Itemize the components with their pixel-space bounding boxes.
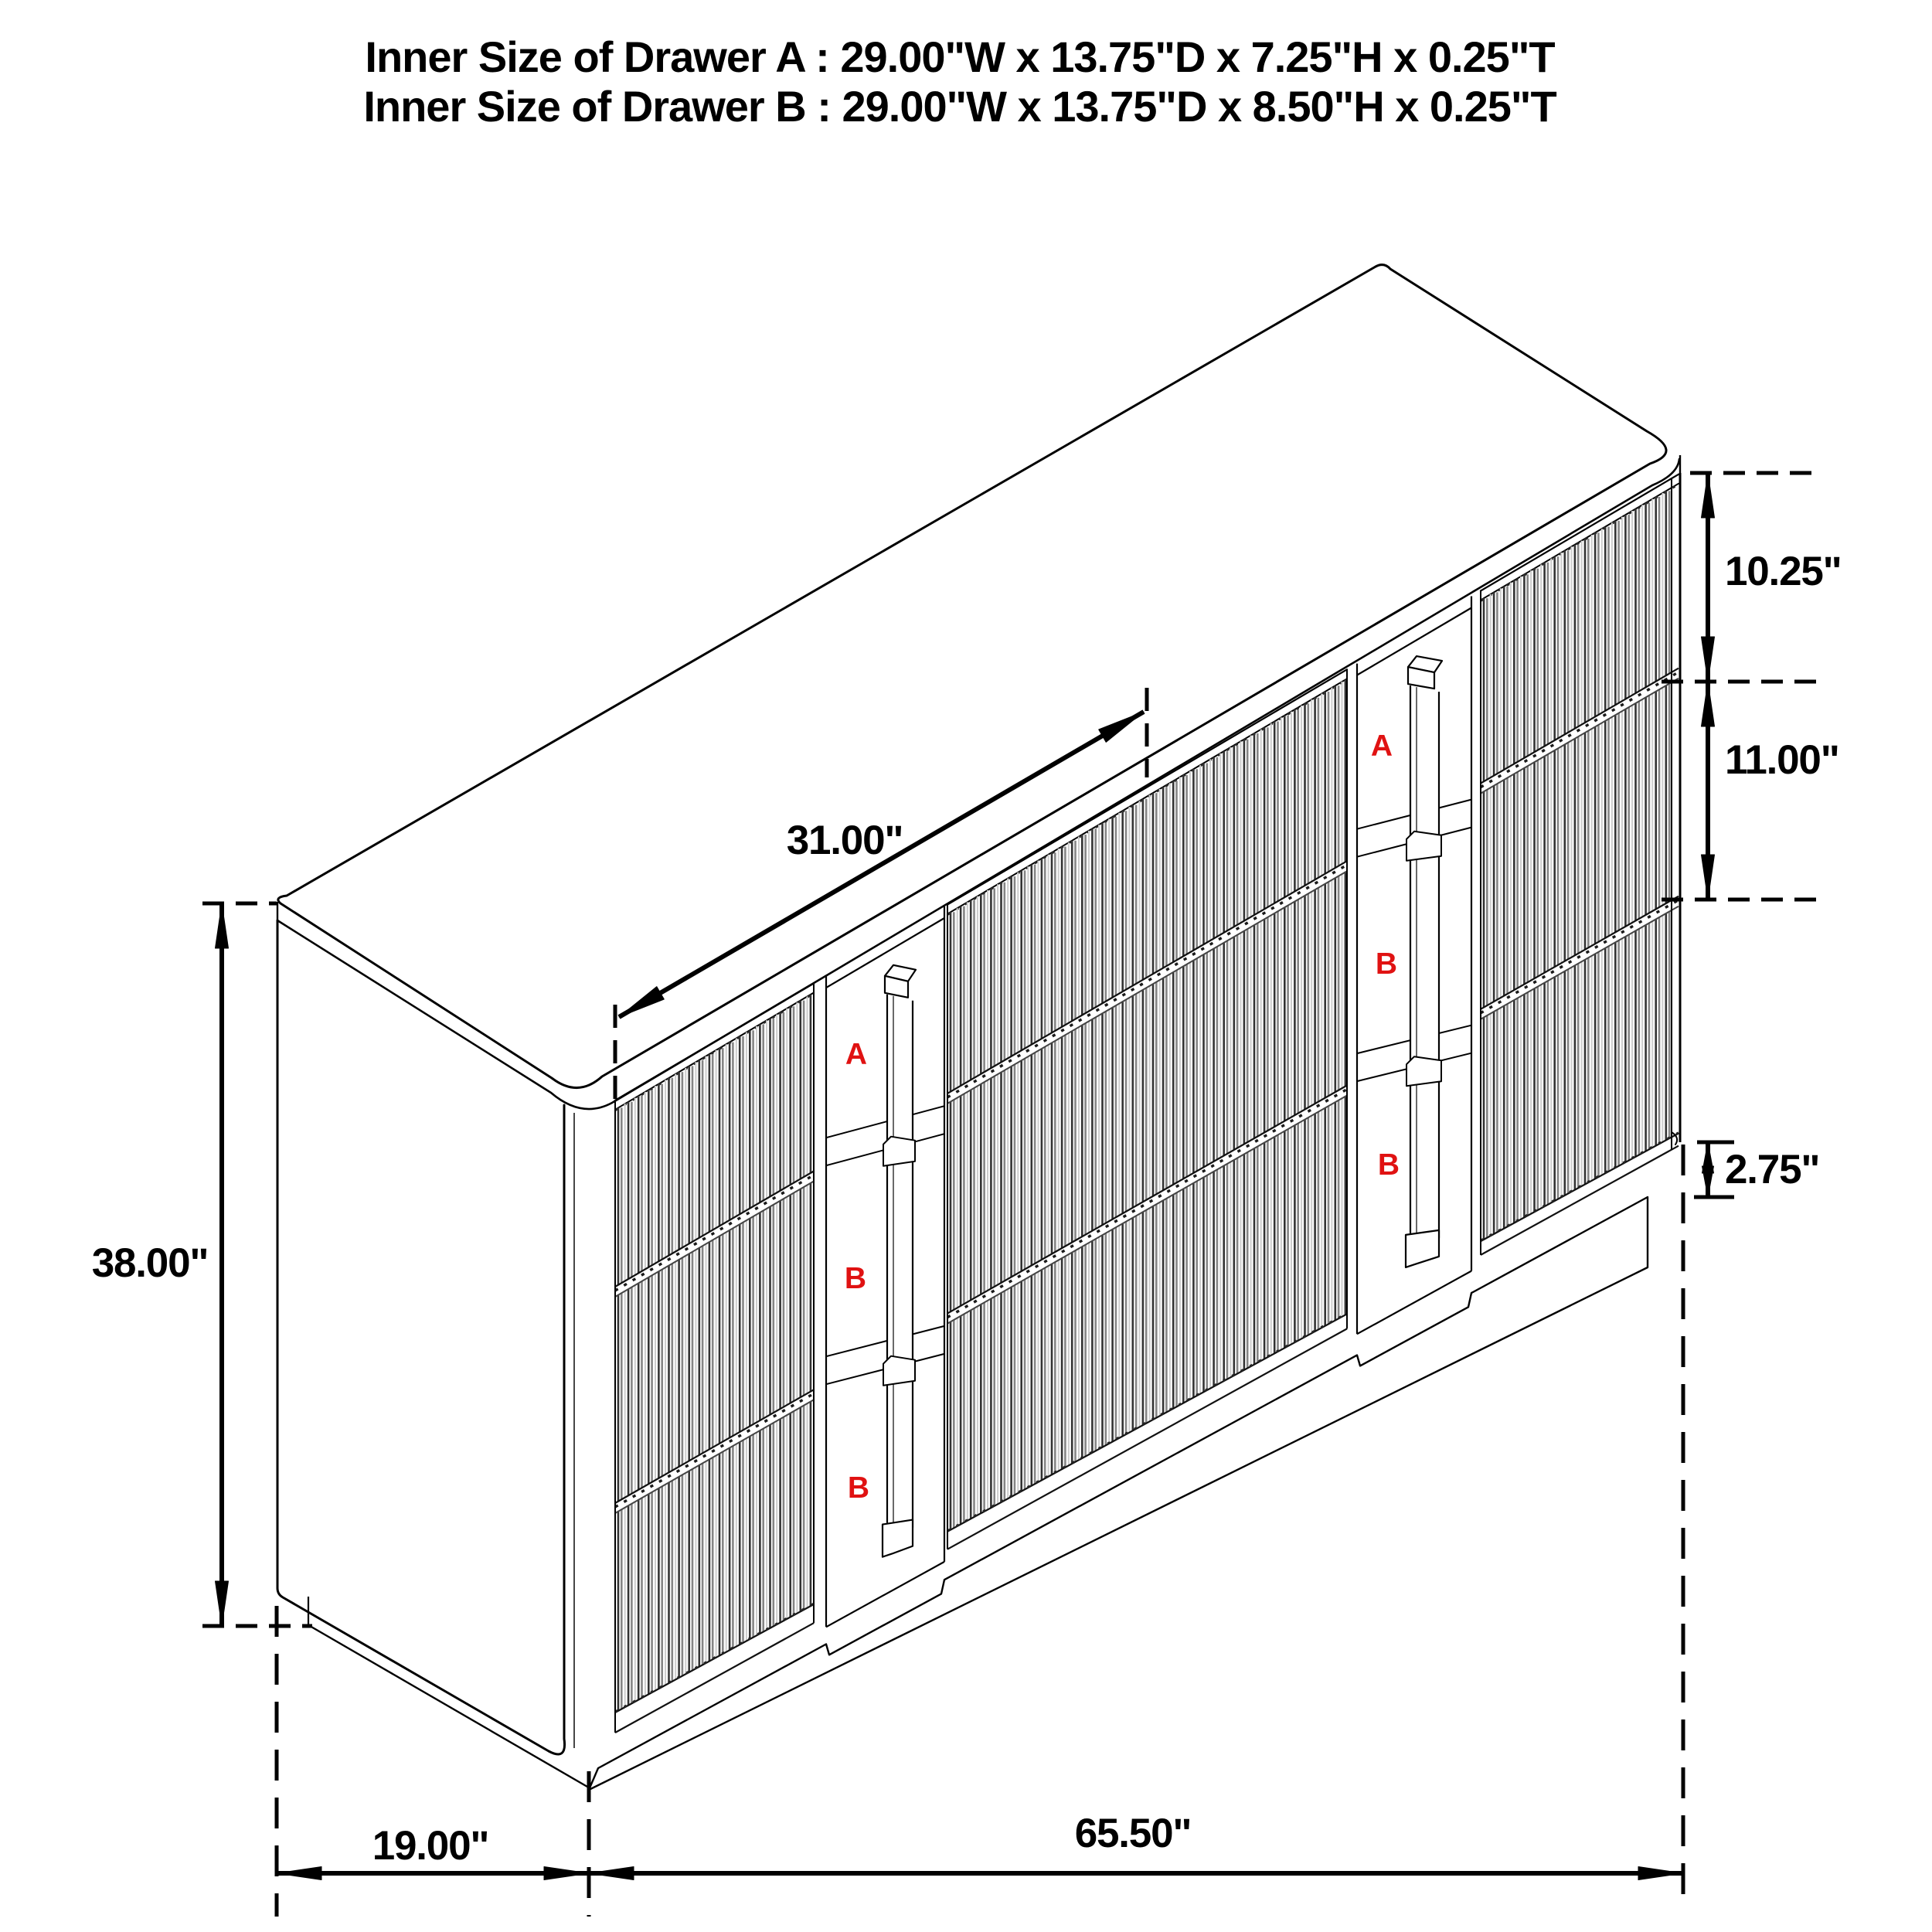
- svg-text:31.00": 31.00": [787, 818, 903, 863]
- svg-text:Inner Size of Drawer B : 29.00: Inner Size of Drawer B : 29.00"W x 13.75…: [363, 82, 1556, 131]
- svg-text:B: B: [1378, 1148, 1400, 1182]
- svg-text:11.00": 11.00": [1725, 737, 1839, 783]
- svg-text:B: B: [1376, 947, 1397, 981]
- svg-text:10.25": 10.25": [1725, 549, 1842, 594]
- svg-text:A: A: [1371, 730, 1393, 763]
- svg-text:38.00": 38.00": [92, 1240, 209, 1286]
- svg-text:65.50": 65.50": [1075, 1811, 1192, 1856]
- svg-text:Inner Size of Drawer A : 29.00: Inner Size of Drawer A : 29.00"W x 13.75…: [365, 32, 1555, 81]
- svg-text:19.00": 19.00": [372, 1823, 489, 1869]
- svg-text:B: B: [845, 1262, 866, 1295]
- svg-text:2.75": 2.75": [1725, 1147, 1819, 1192]
- svg-text:B: B: [848, 1471, 869, 1505]
- svg-text:A: A: [845, 1038, 867, 1071]
